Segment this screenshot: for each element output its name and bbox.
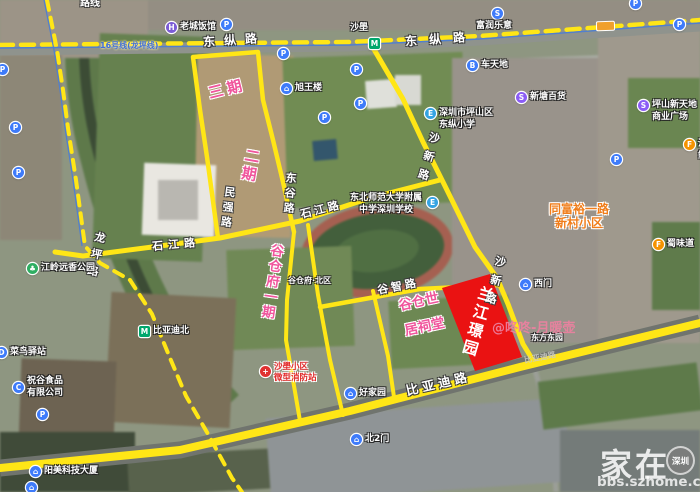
company-icon: C <box>13 382 24 393</box>
poi-label-fire-2: 微型消防站 <box>274 373 317 384</box>
school-icon: E <box>427 197 438 208</box>
metro-line-blue-west <box>44 0 82 246</box>
station-label-bydbei: 比亚迪北 <box>153 326 189 338</box>
parking-icon: P <box>10 122 21 133</box>
gucang-west-road-line <box>308 225 343 415</box>
site-watermark-url: bbs.szhome.com <box>597 474 700 490</box>
estate-label-tongfuyu-2: 新村小区 <box>549 217 609 231</box>
poi-label-neu-school-2: 中学深圳学校 <box>350 205 422 217</box>
poi-label-chetiandi: 车天地 <box>481 60 508 72</box>
poi-label-shuweidao: 蜀味道 <box>667 239 694 251</box>
poi-label-zhugu-1: 祝谷食品 <box>27 376 63 388</box>
gate-icon: ⌂ <box>26 482 37 492</box>
parking-icon: P <box>13 167 24 178</box>
fire-station-icon: + <box>260 366 271 377</box>
station-label-shabo: 沙壆 <box>350 23 368 35</box>
poi-label-dongzong-school-2: 东纵小学 <box>439 120 493 132</box>
poi-label-pingshan-plaza-2: 商业广场 <box>652 112 697 124</box>
poi-label-cainiao: 菜鸟驿站 <box>10 347 46 359</box>
corner-road-label: 路线 <box>80 0 100 9</box>
school-icon: E <box>425 108 436 119</box>
poi-label-neu-school: 东北师范大学附属中学深圳学校 <box>350 193 422 216</box>
poi-label-xuwanglou: 旭王楼 <box>295 83 322 95</box>
poi-label-pingshan-plaza-1: 坪山新天地 <box>652 100 697 112</box>
building-icon: ⌂ <box>30 466 41 477</box>
site-watermark-badge: 深圳 <box>666 446 695 475</box>
metro-station-icon: M <box>139 326 150 337</box>
shop-icon: S <box>516 92 527 103</box>
gate-icon: ⌂ <box>351 434 362 445</box>
shop-icon: S <box>638 100 649 111</box>
shop-icon: S <box>492 8 503 19</box>
poi-label-dongzong-school-1: 深圳市坪山区 <box>439 108 493 120</box>
parking-icon: P <box>674 19 685 30</box>
poi-label-neu-school-1: 东北师范大学附属 <box>350 193 422 205</box>
poi-label-yangmei: 阳美科技大厦 <box>44 466 98 478</box>
poi-label-bei2men: 北2门 <box>365 434 389 446</box>
gate-icon: ⌂ <box>520 279 531 290</box>
user-watermark: @咚咚-月暖壶 <box>492 317 575 336</box>
metro-line16-label: 16号线(龙坪线) <box>100 40 158 51</box>
parking-icon: P <box>278 48 289 59</box>
building-icon: ⌂ <box>281 83 292 94</box>
metro-station-icon: M <box>369 38 380 49</box>
building-icon: ⌂ <box>345 388 356 399</box>
parking-icon: P <box>319 112 330 123</box>
parking-icon: P <box>355 98 366 109</box>
parking-icon: P <box>221 19 232 30</box>
poi-label-ximen: 西门 <box>534 279 552 291</box>
delivery-icon: D <box>0 347 7 358</box>
bus-icon: B <box>467 60 478 71</box>
poi-label-xintang: 新塘百货 <box>530 92 566 104</box>
gucangfu-north-label: 谷仓府·北区 <box>288 276 331 286</box>
poi-label-jiangling-park: 江岭远香公园 <box>41 263 95 275</box>
poi-label-zhugu-2: 有限公司 <box>27 388 63 400</box>
road-shield-badge <box>596 21 615 32</box>
estate-label-tongfuyu-1: 同富裕一路 <box>549 203 609 217</box>
poi-label-hotel: 老城饭馆 <box>180 22 216 34</box>
satellite-map: 路线 东纵路 东纵路 沙新路 沙新路 民强路 东谷路 石江路 石江路 龙坪路 谷… <box>0 0 700 492</box>
food-icon: F <box>653 239 664 250</box>
park-icon: ♣ <box>27 263 38 274</box>
poi-label-furun: 富润乐意 <box>476 21 512 33</box>
food-icon: F <box>684 139 695 150</box>
shijiang-road-line <box>55 180 440 256</box>
gucang-east-road-line <box>373 291 394 397</box>
parking-icon: P <box>611 154 622 165</box>
hotel-icon: H <box>166 22 177 33</box>
donggu-extension-line <box>286 232 300 421</box>
parking-icon: P <box>351 64 362 75</box>
poi-label-haojiayuan: 好家园 <box>359 388 386 400</box>
poi-label-fire-1: 沙壆小区 <box>274 362 317 373</box>
road-label-donggu: 东谷路 <box>279 171 298 217</box>
parking-icon: P <box>37 409 48 420</box>
